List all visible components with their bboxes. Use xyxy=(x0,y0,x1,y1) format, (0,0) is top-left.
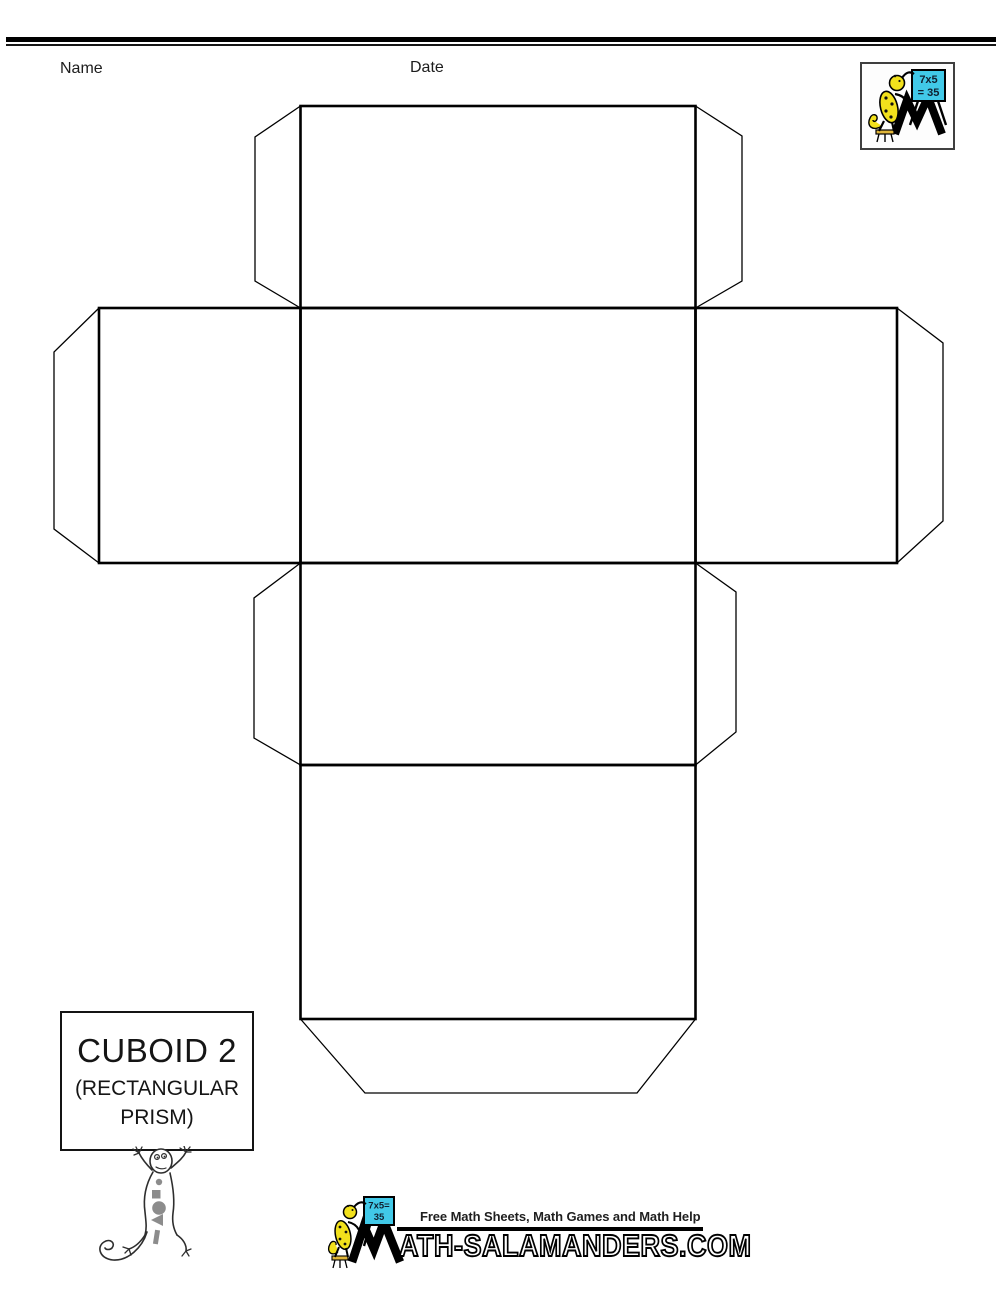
net-tab xyxy=(54,308,99,563)
net-tab xyxy=(897,308,943,563)
net-face-right xyxy=(696,308,898,563)
net-tab xyxy=(254,563,301,765)
net-face-front xyxy=(301,308,696,563)
net-tab xyxy=(696,106,743,308)
net-tab xyxy=(301,1019,696,1093)
board-text-2: 35 xyxy=(374,1212,385,1223)
worksheet-title: CUBOID 2 xyxy=(77,1032,237,1070)
net-face-back xyxy=(301,563,696,765)
footer-logo-icon: 7x5= 35 xyxy=(326,1194,406,1272)
net-face-bottom xyxy=(301,765,696,1019)
climbing-salamander-icon xyxy=(90,1146,235,1271)
footer-wordmark: ATH-SALAMANDERS.COM xyxy=(399,1229,751,1264)
worksheet-subtitle-line1: (RECTANGULAR xyxy=(75,1077,239,1101)
worksheet-subtitle-line2: PRISM) xyxy=(120,1106,194,1130)
net-face-top xyxy=(301,106,696,308)
net-tab xyxy=(696,563,737,765)
footer-tagline: Free Math Sheets, Math Games and Math He… xyxy=(420,1209,700,1224)
board-text-1: 7x5= xyxy=(368,1201,390,1212)
worksheet-page: { "header": { "name_label": "Name", "dat… xyxy=(0,0,1000,1294)
belly-shapes xyxy=(151,1179,166,1245)
net-tab xyxy=(255,106,301,308)
title-box: CUBOID 2 (RECTANGULAR PRISM) xyxy=(60,1011,254,1151)
net-face-left xyxy=(99,308,301,563)
